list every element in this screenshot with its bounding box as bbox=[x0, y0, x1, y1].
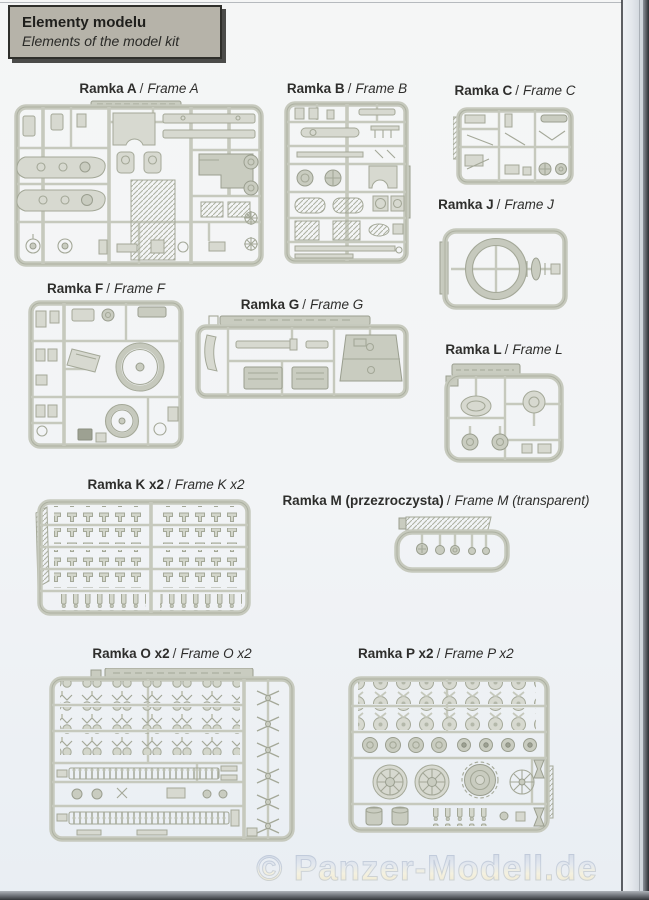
frame-l-section: Ramka L/Frame L bbox=[436, 342, 572, 464]
frame-f-label: Ramka F/Frame F bbox=[20, 281, 192, 297]
frame-j-name-en: Frame J bbox=[504, 197, 554, 212]
frame-f-name-pl: Ramka F bbox=[47, 281, 103, 296]
frame-c-name-pl: Ramka C bbox=[454, 83, 512, 98]
frame-k-sprue-image bbox=[34, 495, 254, 621]
frame-k-name-pl: Ramka K x2 bbox=[87, 477, 164, 492]
frame-k-name-en: Frame K x2 bbox=[175, 477, 245, 492]
label-separator: / bbox=[437, 646, 441, 661]
frame-b-name-en: Frame B bbox=[355, 81, 407, 96]
frame-c-name-en: Frame C bbox=[523, 83, 576, 98]
frame-f-name-en: Frame F bbox=[114, 281, 165, 296]
frame-l-name-en: Frame L bbox=[512, 342, 562, 357]
scanned-page: Elementy modelu Elements of the model ki… bbox=[0, 0, 649, 900]
frame-j-section: Ramka J/Frame J bbox=[430, 197, 580, 314]
frame-b-label: Ramka B/Frame B bbox=[276, 81, 418, 97]
label-separator: / bbox=[167, 477, 171, 492]
page-edge-right-dark bbox=[643, 0, 649, 900]
frame-o-name-en: Frame O x2 bbox=[180, 646, 251, 661]
header-title-pl: Elementy modelu bbox=[22, 13, 220, 32]
page-edge-gutter bbox=[623, 0, 643, 900]
frame-b-sprue-image bbox=[283, 100, 411, 265]
frame-p-name-pl: Ramka P x2 bbox=[358, 646, 434, 661]
frame-p-section: Ramka P x2/Frame P x2 bbox=[338, 646, 562, 838]
frame-p-name-en: Frame P x2 bbox=[444, 646, 513, 661]
frame-k-label: Ramka K x2/Frame K x2 bbox=[28, 477, 260, 493]
frame-o-sprue-image bbox=[47, 668, 297, 846]
frame-g-label: Ramka G/Frame G bbox=[192, 297, 412, 313]
label-separator: / bbox=[302, 297, 306, 312]
frame-c-section: Ramka C/Frame C bbox=[446, 83, 584, 187]
frame-b-section: Ramka B/Frame B bbox=[276, 81, 418, 265]
frame-j-name-pl: Ramka J bbox=[438, 197, 494, 212]
label-separator: / bbox=[348, 81, 352, 96]
frame-a-label: Ramka A/Frame A bbox=[10, 81, 268, 97]
frame-o-section: Ramka O x2/Frame O x2 bbox=[38, 646, 306, 846]
frame-f-section: Ramka F/Frame F bbox=[20, 281, 192, 452]
page-edge-bottom bbox=[0, 891, 649, 900]
label-separator: / bbox=[497, 197, 501, 212]
frame-c-label: Ramka C/Frame C bbox=[446, 83, 584, 99]
frame-j-label: Ramka J/Frame J bbox=[430, 197, 580, 213]
frame-f-sprue-image bbox=[26, 297, 186, 452]
frame-a-section: Ramka A/Frame A bbox=[10, 81, 268, 270]
frame-b-name-pl: Ramka B bbox=[287, 81, 345, 96]
frame-g-section: Ramka G/Frame G bbox=[192, 297, 412, 401]
frame-m-label: Ramka M (przezroczysta)/Frame M (transpa… bbox=[280, 493, 592, 509]
frame-a-sprue-image bbox=[13, 100, 265, 270]
frame-m-name-pl: Ramka M (przezroczysta) bbox=[282, 493, 443, 508]
label-separator: / bbox=[106, 281, 110, 296]
watermark: © Panzer-Modell.de bbox=[222, 849, 632, 889]
frame-g-name-pl: Ramka G bbox=[241, 297, 300, 312]
frame-g-sprue-image bbox=[194, 315, 410, 401]
page-edge-right-line bbox=[621, 0, 623, 900]
frame-o-label: Ramka O x2/Frame O x2 bbox=[38, 646, 306, 662]
label-separator: / bbox=[515, 83, 519, 98]
frame-p-label: Ramka P x2/Frame P x2 bbox=[338, 646, 562, 662]
label-separator: / bbox=[447, 493, 451, 508]
frame-l-name-pl: Ramka L bbox=[445, 342, 501, 357]
frame-m-sprue-image bbox=[392, 515, 512, 573]
frame-p-sprue-image bbox=[346, 670, 554, 838]
label-separator: / bbox=[505, 342, 509, 357]
frame-a-name-pl: Ramka A bbox=[79, 81, 136, 96]
frame-l-sprue-image bbox=[442, 362, 566, 464]
page-edge-gutter-line bbox=[639, 0, 640, 900]
frame-a-name-en: Frame A bbox=[147, 81, 198, 96]
frame-m-name-en: Frame M (transparent) bbox=[455, 493, 590, 508]
frame-o-name-pl: Ramka O x2 bbox=[92, 646, 169, 661]
label-separator: / bbox=[173, 646, 177, 661]
frame-g-name-en: Frame G bbox=[310, 297, 363, 312]
frame-j-sprue-image bbox=[439, 222, 571, 314]
frame-m-section: Ramka M (przezroczysta)/Frame M (transpa… bbox=[280, 493, 592, 573]
label-separator: / bbox=[140, 81, 144, 96]
frame-k-section: Ramka K x2/Frame K x2 bbox=[28, 477, 260, 621]
header-title-en: Elements of the model kit bbox=[22, 32, 220, 50]
frame-c-sprue-image bbox=[453, 105, 577, 187]
page-edge-top bbox=[0, 2, 622, 3]
header-box: Elementy modelu Elements of the model ki… bbox=[8, 5, 222, 59]
frame-l-label: Ramka L/Frame L bbox=[436, 342, 572, 358]
